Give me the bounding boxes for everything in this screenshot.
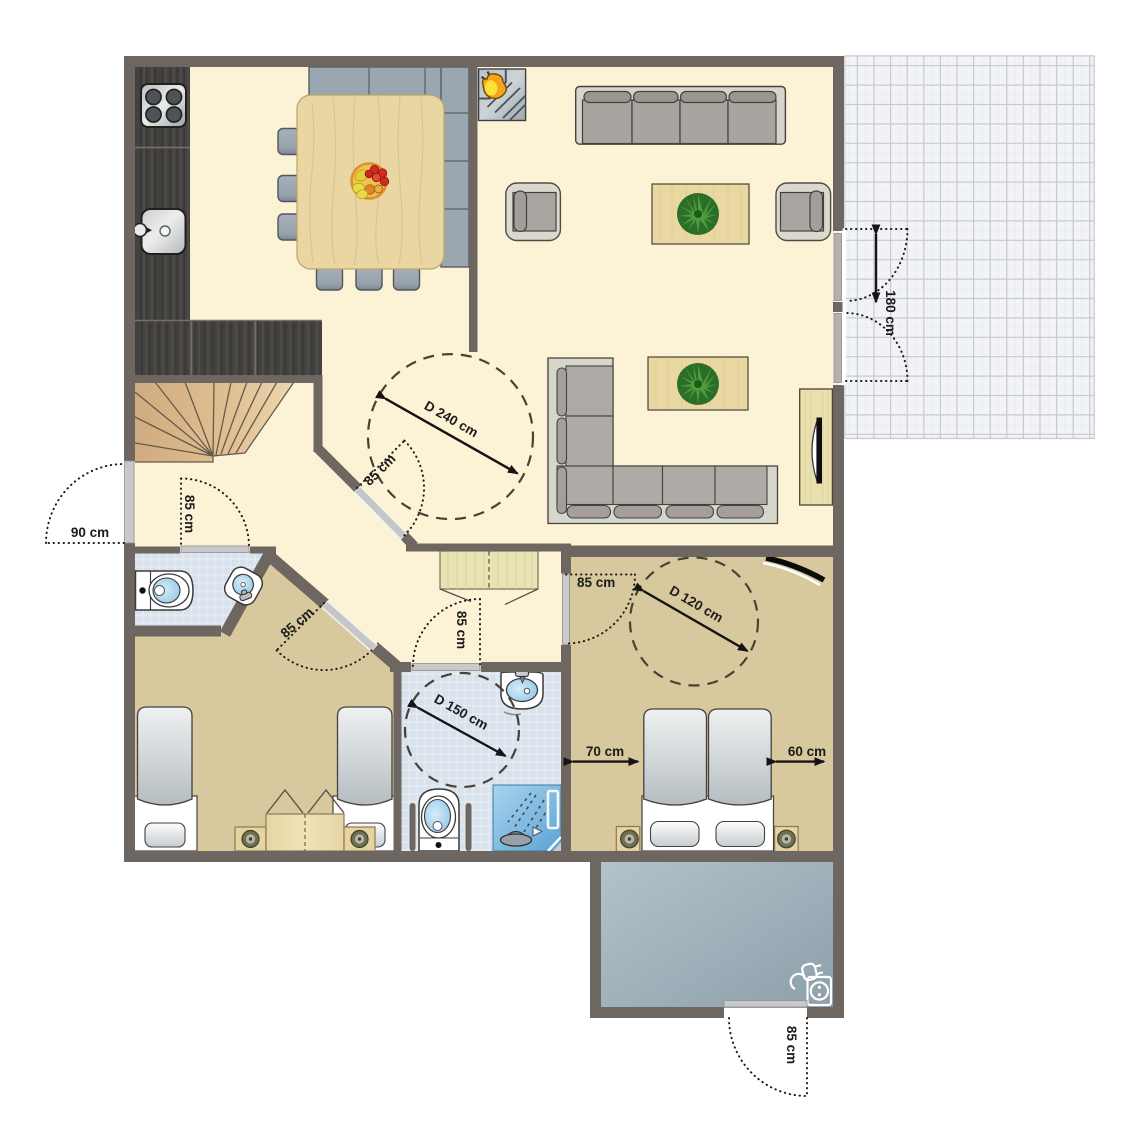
svg-text:85 cm: 85 cm [454, 611, 469, 649]
svg-text:180 cm: 180 cm [883, 290, 898, 336]
svg-text:70 cm: 70 cm [586, 744, 624, 759]
svg-text:85 cm: 85 cm [577, 575, 615, 590]
svg-text:90 cm: 90 cm [71, 525, 109, 540]
svg-text:85 cm: 85 cm [784, 1026, 799, 1064]
svg-text:60 cm: 60 cm [788, 744, 826, 759]
svg-text:85 cm: 85 cm [182, 495, 197, 533]
